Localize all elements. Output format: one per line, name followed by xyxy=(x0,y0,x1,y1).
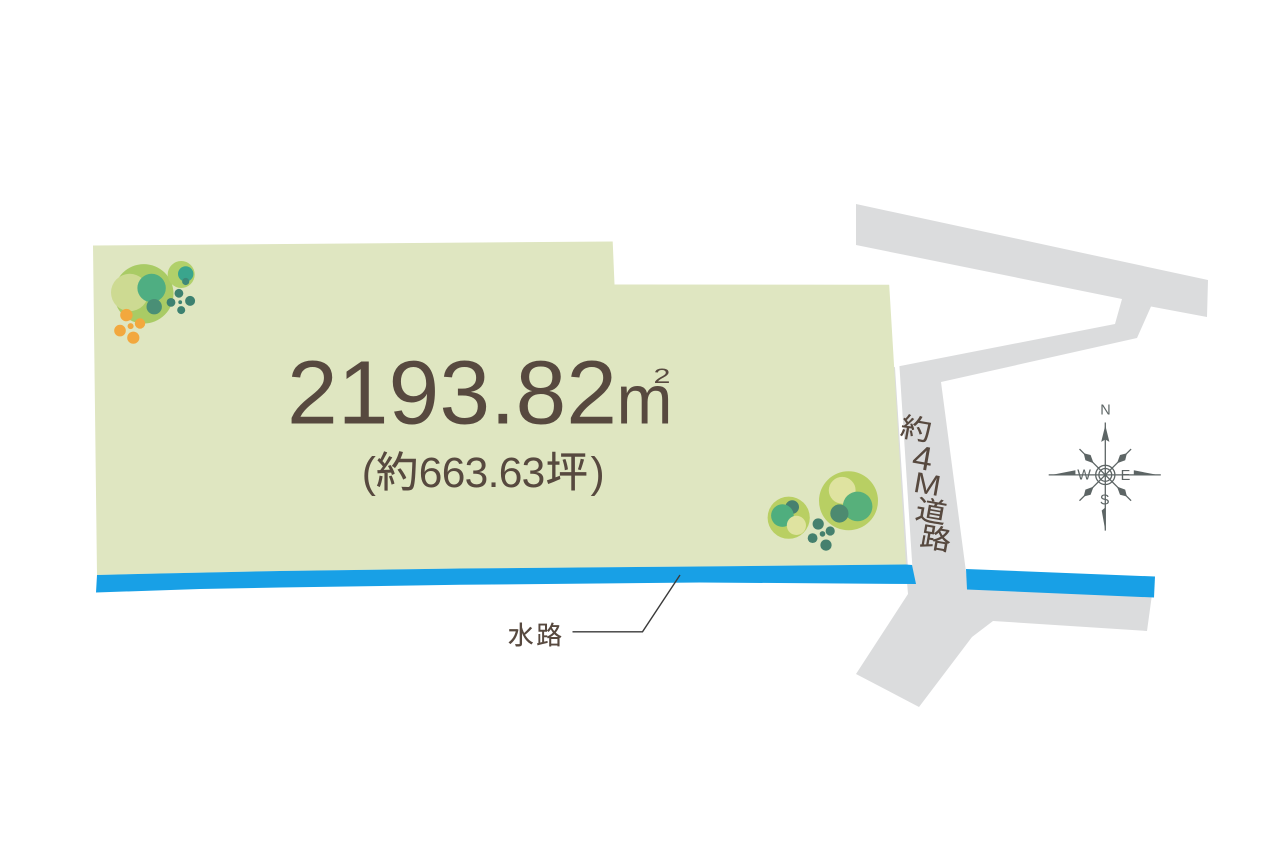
svg-text:): ) xyxy=(591,450,605,497)
svg-text:663.63: 663.63 xyxy=(419,450,546,497)
svg-text:(: ( xyxy=(362,450,376,497)
svg-text:2193.82: 2193.82 xyxy=(287,344,617,444)
svg-text:W: W xyxy=(1077,468,1091,484)
svg-text:E: E xyxy=(1121,468,1131,484)
svg-text:S: S xyxy=(1100,493,1110,509)
svg-text:N: N xyxy=(1100,403,1110,419)
svg-text:2: 2 xyxy=(654,364,671,388)
svg-text:M: M xyxy=(911,467,943,503)
